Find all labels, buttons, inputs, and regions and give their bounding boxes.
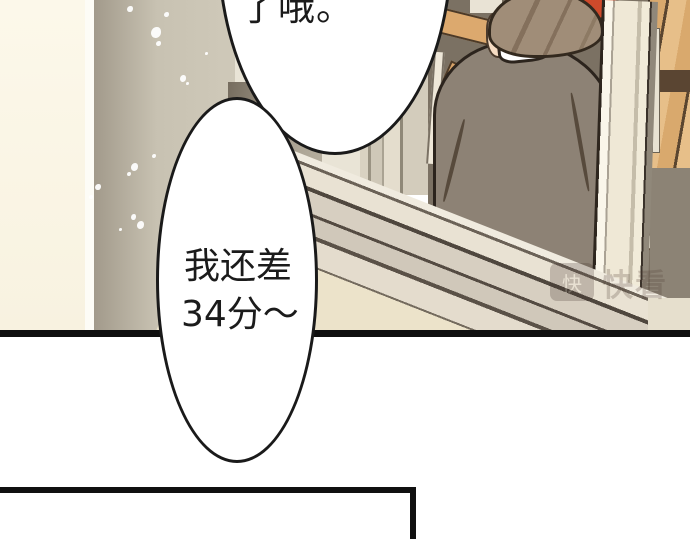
watermark-logo-char: 快 xyxy=(562,268,582,297)
comic-page: 快 快看 了哦。 我还差 34分～ xyxy=(0,0,690,539)
student-hair xyxy=(488,0,604,58)
panel-bottom-border xyxy=(0,330,690,337)
speech-line-2: 34分～ xyxy=(181,291,295,339)
wall-cream xyxy=(0,0,85,337)
speech-bubble-top-text: 了哦。 xyxy=(240,0,354,31)
watermark-brand-text: 快看 xyxy=(602,260,668,305)
speech-bubble-middle-text: 我还差 34分～ xyxy=(181,243,295,339)
kuaikan-watermark: 快 快看 xyxy=(550,258,690,306)
next-panel-frame xyxy=(0,487,416,539)
kuaikan-logo-icon: 快 xyxy=(550,263,594,301)
wall-corner-strip xyxy=(85,0,94,337)
speech-line-1: 我还差 xyxy=(181,243,295,291)
